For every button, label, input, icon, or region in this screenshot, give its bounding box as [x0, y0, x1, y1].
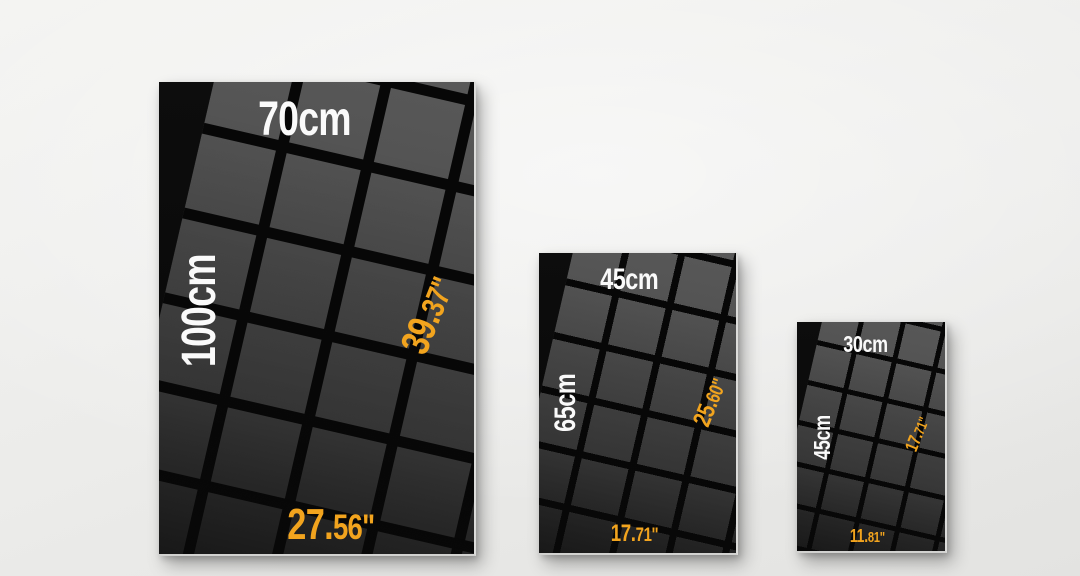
- width-inches-label: 11.81": [797, 527, 941, 545]
- height-cm-label: 100cm: [175, 231, 225, 391]
- width-inches-label: 17.71": [539, 522, 733, 546]
- width-cm-label: 70cm: [159, 96, 462, 144]
- poster-medium-65x45: 45cm 65cm 25.60" 17.71": [539, 253, 738, 555]
- width-inches-label: 27.56": [173, 503, 476, 547]
- width-cm-label: 45cm: [539, 265, 728, 295]
- poster-small-45x30: 30cm 45cm 17.71" 11.81": [797, 322, 947, 553]
- wall-background: 70cm 100cm 39.37" 27.56" 45cm 65cm 25.60…: [0, 0, 1080, 576]
- width-cm-label: 30cm: [797, 333, 939, 356]
- height-cm-label: 65cm: [548, 343, 584, 463]
- height-cm-label: 45cm: [808, 388, 836, 488]
- poster-large-100x70: 70cm 100cm 39.37" 27.56": [159, 82, 476, 556]
